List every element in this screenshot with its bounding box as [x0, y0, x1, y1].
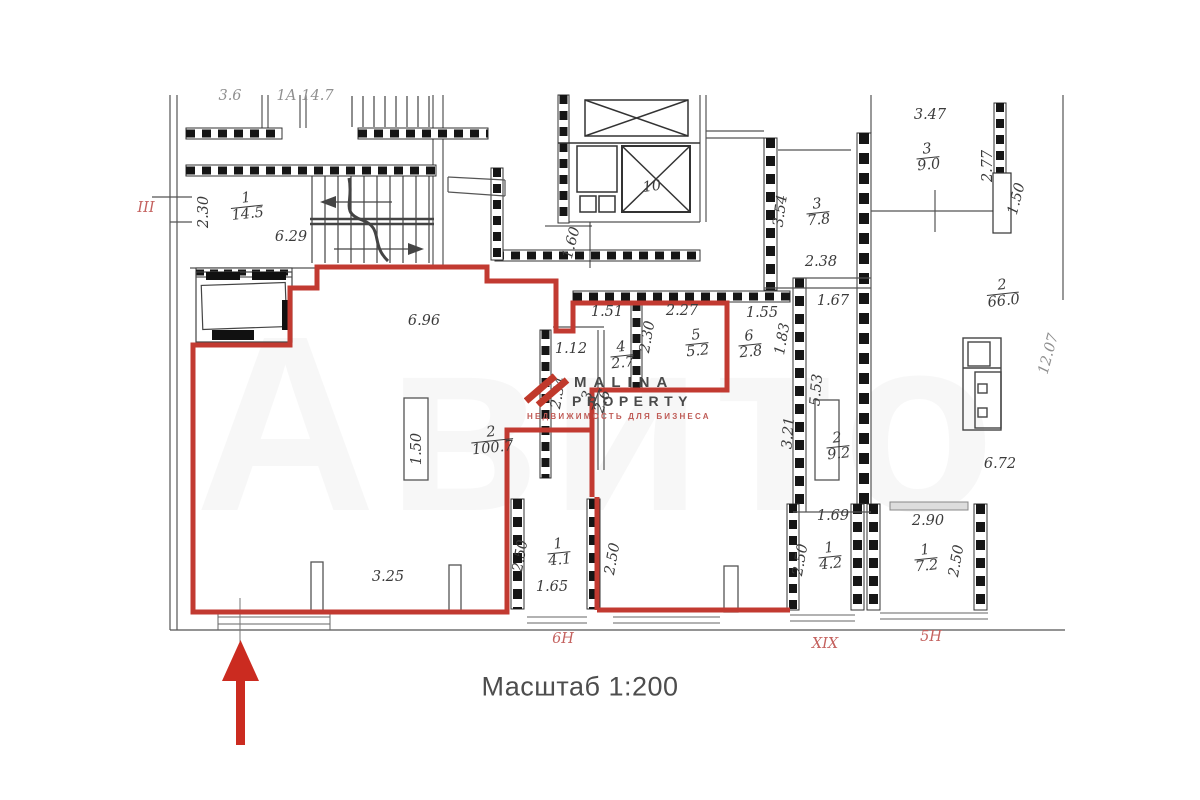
room-label-7-8: 3 7.8	[805, 196, 831, 230]
zone-label: 6Н	[552, 632, 574, 647]
elevator-number: 10	[642, 179, 662, 196]
scale-caption: Масштаб 1:200	[481, 672, 678, 703]
dim-label: 2.27	[666, 304, 698, 319]
dim-label: 6.29	[275, 230, 307, 245]
dim-label: 6.72	[984, 457, 1016, 472]
dim-label: 3.47	[914, 108, 946, 123]
entrance-arrow-icon	[222, 640, 259, 745]
storage-room	[196, 272, 292, 342]
dim-label: 1.50	[410, 433, 425, 465]
dim-label: 1.69	[817, 509, 849, 524]
room-label-4-2: 1 4.2	[817, 540, 843, 574]
zone-label: XIX	[812, 637, 838, 652]
room-label-9-2: 2 9.2	[825, 430, 851, 464]
dim-label: 1.51	[591, 305, 623, 320]
dim-label: 1.12	[555, 342, 587, 357]
room-label-loggia: 1 4.1	[546, 536, 572, 570]
dim-label: 3.21	[780, 416, 797, 449]
utility-fixture	[963, 338, 1001, 430]
stairwell	[310, 96, 434, 263]
room-label-5-2: 5 5.2	[684, 327, 710, 361]
dim-label: 1.67	[817, 294, 849, 309]
dim-label: 2.38	[805, 255, 837, 270]
zone-label: III	[137, 201, 154, 216]
dim-label: 1.65	[536, 580, 568, 595]
dim-label: 6.96	[408, 314, 440, 329]
dim-label: 3.25	[372, 570, 404, 585]
zone-label: 5Н	[920, 630, 942, 645]
room-label-66-0: 2 66.0	[985, 277, 1020, 312]
room-label-9-0: 3 9.0	[915, 141, 941, 175]
dim-label: 2.77	[981, 150, 996, 182]
floor-plan-page: Авито	[0, 0, 1200, 800]
dim-label: 1.55	[746, 306, 778, 321]
dim-label-partial: 1А 14.7	[276, 89, 333, 104]
dim-label: 5.53	[808, 373, 825, 406]
dim-label-partial: 3.6	[218, 89, 241, 104]
room-label-2-7: 4 2.7	[609, 339, 635, 373]
dim-label: 2.90	[912, 514, 944, 529]
room-label-2-8: 6 2.8	[737, 328, 763, 362]
room-label-stair: 1 14.5	[229, 190, 264, 225]
dim-label: 2.30	[197, 196, 212, 228]
room-label-7-2: 1 7.2	[913, 542, 939, 576]
room-label-main: 2 100.7	[470, 423, 515, 459]
